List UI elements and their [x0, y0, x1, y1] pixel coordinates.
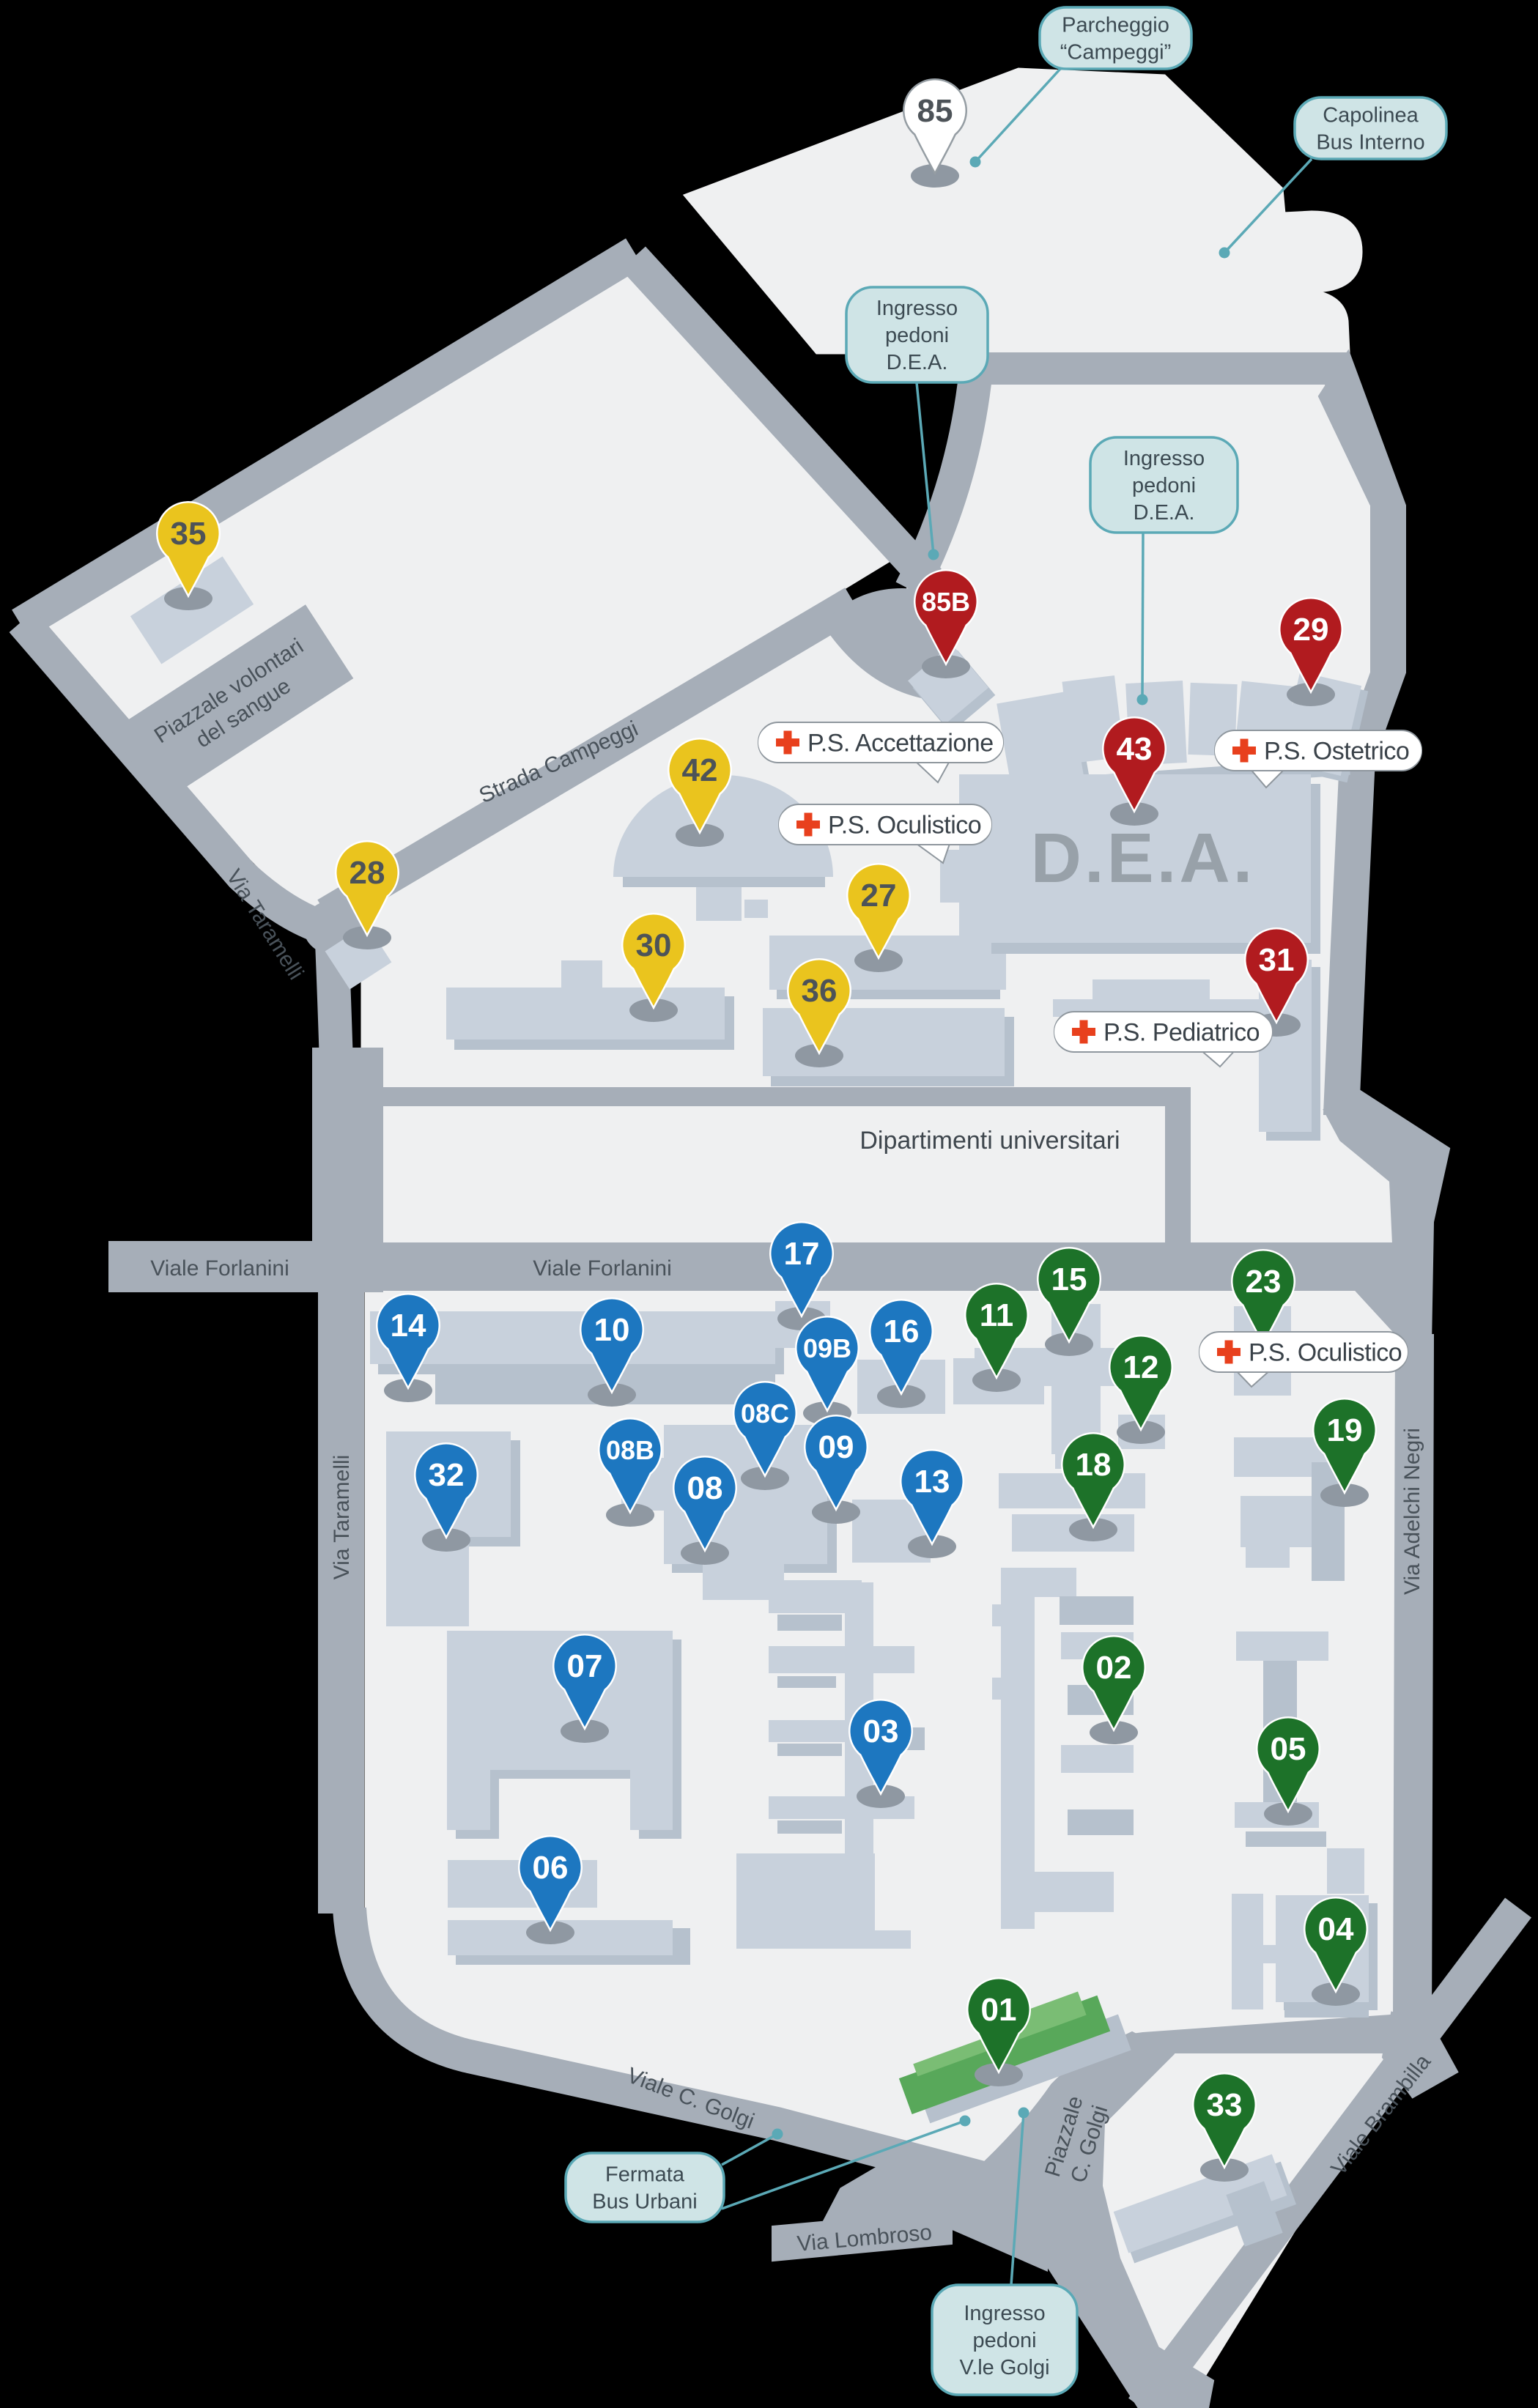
svg-text:33: 33 — [1207, 2087, 1243, 2123]
svg-text:P.S. Ostetrico: P.S. Ostetrico — [1264, 738, 1409, 766]
svg-text:Ingresso: Ingresso — [876, 297, 958, 320]
svg-text:13: 13 — [914, 1464, 950, 1500]
svg-text:85B: 85B — [922, 587, 970, 617]
svg-text:Ingresso: Ingresso — [1123, 447, 1205, 470]
svg-text:D.E.A.: D.E.A. — [887, 351, 948, 374]
svg-text:P.S. Oculistico: P.S. Oculistico — [1249, 1339, 1402, 1367]
svg-text:08C: 08C — [741, 1399, 789, 1429]
svg-text:P.S. Pediatrico: P.S. Pediatrico — [1103, 1019, 1260, 1047]
svg-text:17: 17 — [784, 1236, 820, 1272]
svg-text:Via Adelchi Negri: Via Adelchi Negri — [1400, 1428, 1424, 1595]
svg-text:03: 03 — [863, 1714, 899, 1749]
svg-text:Parcheggio: Parcheggio — [1062, 14, 1169, 37]
svg-text:30: 30 — [636, 927, 672, 963]
svg-text:23: 23 — [1246, 1264, 1282, 1300]
svg-text:06: 06 — [533, 1850, 569, 1886]
svg-text:Fermata: Fermata — [605, 2163, 685, 2187]
svg-text:pedoni: pedoni — [885, 324, 949, 347]
svg-text:D.E.A.: D.E.A. — [1134, 501, 1195, 525]
svg-text:08B: 08B — [606, 1435, 654, 1465]
svg-text:pedoni: pedoni — [1132, 474, 1196, 497]
svg-text:Viale Forlanini: Viale Forlanini — [150, 1256, 289, 1281]
svg-text:28: 28 — [350, 855, 385, 891]
svg-text:43: 43 — [1117, 731, 1153, 767]
svg-text:“Campeggi”: “Campeggi” — [1060, 41, 1172, 64]
svg-text:V.le Golgi: V.le Golgi — [959, 2356, 1049, 2379]
svg-text:15: 15 — [1051, 1262, 1087, 1297]
svg-text:35: 35 — [171, 516, 207, 552]
svg-text:85: 85 — [917, 93, 953, 129]
svg-text:42: 42 — [682, 752, 718, 788]
svg-text:Via Taramelli: Via Taramelli — [330, 1455, 354, 1580]
svg-text:P.S. Accettazione: P.S. Accettazione — [807, 730, 994, 757]
svg-text:11: 11 — [980, 1297, 1014, 1333]
svg-text:07: 07 — [567, 1648, 603, 1684]
svg-text:01: 01 — [981, 1992, 1017, 2028]
svg-text:31: 31 — [1259, 942, 1295, 978]
svg-text:09B: 09B — [803, 1333, 851, 1363]
svg-text:29: 29 — [1293, 612, 1329, 648]
svg-text:32: 32 — [429, 1457, 465, 1493]
svg-text:02: 02 — [1096, 1650, 1132, 1686]
svg-text:Bus Urbani: Bus Urbani — [592, 2190, 697, 2214]
svg-text:14: 14 — [391, 1308, 426, 1344]
svg-text:09: 09 — [818, 1429, 854, 1465]
svg-text:27: 27 — [861, 878, 897, 914]
svg-text:Ingresso: Ingresso — [964, 2302, 1045, 2325]
svg-text:36: 36 — [802, 973, 838, 1009]
svg-text:16: 16 — [884, 1314, 920, 1349]
svg-text:19: 19 — [1327, 1412, 1363, 1448]
svg-text:P.S. Oculistico: P.S. Oculistico — [828, 812, 981, 840]
svg-text:Viale Forlanini: Viale Forlanini — [533, 1256, 672, 1281]
svg-text:10: 10 — [594, 1312, 630, 1348]
svg-text:18: 18 — [1076, 1447, 1112, 1483]
svg-text:D.E.A.: D.E.A. — [1031, 819, 1256, 897]
svg-text:12: 12 — [1123, 1349, 1159, 1385]
svg-text:pedoni: pedoni — [972, 2329, 1036, 2352]
svg-text:Capolinea: Capolinea — [1323, 104, 1419, 127]
svg-text:Dipartimenti universitari: Dipartimenti universitari — [859, 1127, 1120, 1155]
svg-text:08: 08 — [687, 1470, 723, 1506]
svg-text:Bus Interno: Bus Interno — [1316, 131, 1424, 155]
svg-text:05: 05 — [1271, 1731, 1306, 1767]
svg-text:04: 04 — [1318, 1911, 1354, 1947]
